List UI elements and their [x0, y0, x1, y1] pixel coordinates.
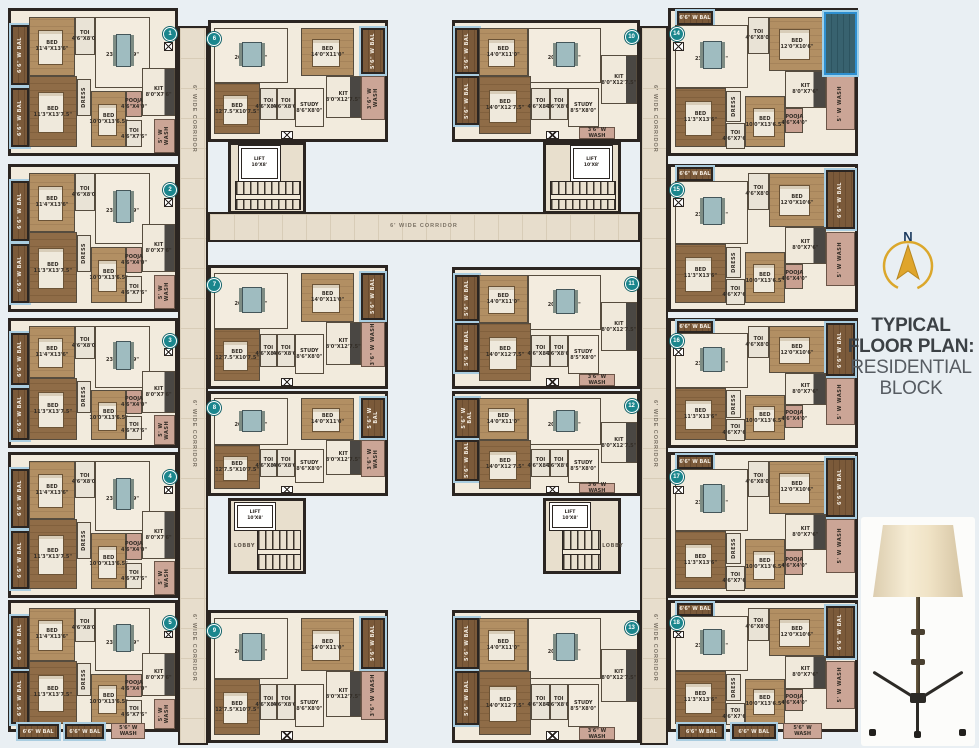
room-bed: BED 10'0"X13'6.5" — [745, 679, 785, 724]
compass-needle — [897, 245, 919, 279]
room-6-6-w-bal: 6'6" W BAL — [11, 469, 29, 528]
corridor-label: 6' WIDE CORRIDOR — [390, 224, 458, 230]
room-bed: BED 14'0"X12'7.5" — [479, 323, 532, 381]
room-label: 5' W WASH — [837, 86, 843, 121]
room-label: KIT 8'0"X12'7.5" — [326, 451, 361, 463]
room-livdin: LIVDIN 20'5"X10'9" — [214, 28, 287, 84]
room-5-w-wash: 5' W WASH — [826, 76, 855, 130]
room-kit: KIT 8'0"X7'6" — [785, 71, 825, 108]
room-label: LIVDIN 20'5"X10'9" — [235, 416, 268, 428]
apartment-unit: 6'6" W BALLIVDIN 23'3"X10'9"TOI 4'6"X8'0… — [668, 600, 858, 732]
room-5-6-w-bal: 5'6" W BAL — [455, 76, 479, 125]
room-3-6-w-wash: 3'6" W WASH — [361, 322, 385, 367]
room-bed: BED 11'3"X13'7.5" — [29, 519, 77, 589]
room-bed: BED 10'0"X13'6.5" — [91, 533, 125, 589]
room-pooja: POOJA 4'6"X4'0" — [126, 390, 142, 414]
room-label: BED 11'3"X13'7.5" — [34, 403, 72, 415]
room-label: 6'6" W BAL — [17, 396, 23, 432]
room-label: STUDY 8'6"X8'0" — [296, 700, 322, 712]
room-5-6-w-bal: 5'6" W BAL — [361, 398, 385, 438]
stair-core: LIFT 10'X8'LOBBY — [228, 498, 306, 574]
room-toi: TOI 4'6"X7'6" — [126, 700, 142, 724]
room-toi: TOI 4'6"X7'6" — [726, 703, 744, 726]
room-3-6-w-wash: 3'6" W WASH — [361, 440, 385, 478]
room-6-6-w-bal: 6'6" W BAL — [11, 333, 29, 385]
room-bed: BED 12'7.5"X10'7.5" — [214, 679, 259, 735]
apartment-unit: 6'6" W BALLIVDIN 23'3"X10'9"TOI 4'6"X8'0… — [668, 8, 858, 156]
room-label: LIVDIN 20'5"X10'9" — [548, 416, 581, 428]
room-kit: KIT 8'0"X7'6" — [785, 373, 825, 405]
room-toi: TOI 4'6"X8'0" — [277, 88, 294, 120]
apartment-unit: 6'6" W BAL6'6" W BALBED 11'4"X13'6"TOI 4… — [8, 318, 178, 448]
room-6-6-w-bal: 6'6" W BAL — [18, 724, 59, 739]
room-label: 5'6" W BAL — [464, 330, 470, 366]
room-5-6-w-bal: 5'6" W BAL — [455, 28, 479, 74]
room-toi: TOI 4'6"X8'0" — [748, 173, 768, 210]
room-label: KIT 8'0"X7'6" — [792, 239, 818, 251]
door-mark — [546, 731, 559, 740]
room-label: POOJA 4'6"X4'0" — [781, 270, 807, 282]
unit-number-badge: 15 — [670, 183, 684, 197]
unit-number-badge: 16 — [670, 334, 684, 348]
room-label: 6'6" W BAL — [837, 469, 843, 505]
room-label: KIT 8'0"X7'6" — [146, 529, 172, 541]
plan-title-sub: RESIDENTIAL BLOCK — [845, 358, 977, 400]
room-kit: KIT 8'0"X12'7.5" — [601, 649, 637, 702]
room-label: KIT 8'0"X7'6" — [792, 83, 818, 95]
room-bed: BED 10'0"X13'6.5" — [745, 252, 785, 303]
room-label: BED 10'0"X13'6.5" — [89, 269, 127, 281]
room-label: KIT 8'0"X12'7.5" — [601, 321, 636, 333]
room-label: BED 10'0"X13'6.5" — [89, 409, 127, 421]
room-kit: KIT 8'0"X7'6" — [142, 653, 175, 696]
room-bed: BED 12'0"X10'6" — [769, 326, 826, 373]
room-label: 5' W WASH — [837, 384, 843, 419]
room-livdin: LIVDIN 23'3"X10'9" — [675, 181, 749, 243]
door-mark — [164, 42, 174, 51]
room-pooja: POOJA 4'6"X4'0" — [785, 264, 803, 290]
room-study: STUDY 8'5"X8'0" — [568, 88, 599, 127]
room-label: 6'6" W BAL — [679, 171, 710, 177]
room-toi: TOI 4'6"X8'0" — [531, 684, 549, 720]
room-label: BED 11'3"X13'6" — [684, 267, 717, 279]
room-label: BED 14'0"X11'0" — [311, 639, 344, 651]
room-label: DRESS — [81, 243, 87, 264]
room-label: LIVDIN 23'3"X10'9" — [106, 202, 139, 214]
room-label: TOI 4'6"X7'6" — [121, 706, 147, 718]
room-label: 5'6" W BAL — [370, 33, 376, 69]
room-label: 3'6" W WASH — [580, 374, 614, 386]
room-label: KIT 8'0"X12'7.5" — [601, 669, 636, 681]
room-6-6-w-bal: 6'6" W BAL — [11, 88, 29, 148]
room-bed: BED 11'4"X13'6" — [29, 173, 75, 233]
room-toi: TOI 4'6"X8'0" — [277, 449, 294, 477]
room-6-6-w-bal: 6'6" W BAL — [826, 170, 855, 230]
lamp-tripod-leg — [916, 671, 963, 702]
lift: LIFT 10'X8' — [237, 505, 274, 528]
room-6-6-w-bal: 6'6" W BAL — [11, 616, 29, 669]
room-label: LIVDIN 20'5"X10'9" — [548, 49, 581, 61]
room-bed: BED 10'0"X13'6.5" — [745, 539, 785, 589]
room-label: BED 14'0"X12'7.5" — [486, 346, 524, 358]
room-bed: BED 14'0"X11'0" — [479, 618, 528, 671]
room-label: 5'6" W BAL — [464, 83, 470, 119]
unit-number-badge: 12 — [625, 399, 639, 413]
corridor: 6' WIDE CORRIDOR6' WIDE CORRIDOR6' WIDE … — [178, 26, 208, 745]
corridor: 6' WIDE CORRIDOR — [208, 212, 640, 242]
door-mark — [281, 486, 293, 493]
room-bed: BED 11'3"X13'6" — [675, 671, 727, 724]
room-5-6-w-bal: 5'6" W BAL — [361, 618, 385, 669]
apartment-unit: 6'6" W BALLIVDIN 23'3"X10'9"TOI 4'6"X8'0… — [668, 318, 858, 448]
room-bed: BED 11'3"X13'6" — [675, 531, 727, 590]
room-5-6-w-bal: 5'6" W BAL — [455, 398, 479, 438]
apartment-unit: 5'6" W BAL5'6" W BALBED 14'0"X11'0"LIVDI… — [452, 391, 640, 496]
corridor-label: 6' WIDE CORRIDOR — [190, 400, 196, 468]
room-label: 6'6" W BAL — [679, 459, 710, 465]
room-label: DRESS — [731, 394, 737, 415]
apartment-unit: 6'6" W BAL6'6" W BALBED 11'4"X13'6"TOI 4… — [8, 164, 178, 312]
unit-number-badge: 9 — [207, 624, 221, 638]
room-bed: BED 12'7.5"X10'7.5" — [214, 83, 259, 134]
room-label: BED 11'3"X13'7.5" — [34, 106, 72, 118]
door-mark — [546, 378, 559, 386]
north-compass-icon: N — [878, 228, 938, 294]
room-label: BED 11'4"X13'6" — [35, 196, 68, 208]
room-label: 5'6" W BAL — [464, 680, 470, 716]
room-toi: TOI 4'6"X8'0" — [260, 88, 277, 120]
door-mark — [673, 631, 684, 639]
room-label: 5' W WASH — [158, 120, 170, 152]
room-toi: TOI 4'6"X8'0" — [277, 334, 294, 367]
room-label: TOI 4'6"X7'6" — [121, 128, 147, 140]
room-label: BED 10'0"X13'6.5" — [89, 113, 127, 125]
room-livdin: LIVDIN 23'3"X10'9" — [675, 333, 749, 388]
room-label: LIVDIN 20'5"X10'9" — [235, 49, 268, 61]
room-5-6-w-bal: 5'6" W BAL — [361, 28, 385, 74]
room-6-6-w-bal: 6'6" W BAL — [677, 321, 714, 333]
room-toi: TOI 4'6"X8'0" — [550, 335, 568, 367]
room-bed: BED 12'7.5"X10'7.5" — [214, 445, 259, 489]
unit-number-badge: 6 — [207, 32, 221, 46]
apartment-unit: LIVDIN 20'5"X10'9"BED 14'0"X11'0"5'6" W … — [208, 610, 388, 743]
room-5-6-w-bal: 5'6" W BAL — [361, 273, 385, 320]
room-toi: TOI 4'6"X8'0" — [550, 88, 568, 120]
room-bed: BED 10'0"X13'6.5" — [91, 390, 125, 440]
room-label: BED 14'0"X12'7.5" — [486, 697, 524, 709]
room-label: TOI 4'6"X8'0" — [745, 29, 771, 41]
room-livdin: LIVDIN 23'3"X10'9" — [675, 25, 749, 87]
room-toi: TOI 4'6"X8'0" — [75, 608, 95, 642]
room-label: BED 11'4"X13'6" — [35, 346, 68, 358]
room-kit: KIT 8'0"X12'7.5" — [326, 671, 361, 717]
room-label: KIT 8'0"X12'7.5" — [326, 688, 361, 700]
plan-title: TYPICAL FLOOR PLAN: RESIDENTIAL BLOCK — [845, 316, 977, 400]
lobby-label: LOBBY — [602, 544, 623, 549]
room-label: 5'6" W BAL — [370, 625, 376, 661]
room-label: BED 12'7.5"X10'7.5" — [215, 701, 259, 713]
unit-number-badge: 3 — [163, 334, 177, 348]
room-label: 5'6" W BAL — [367, 400, 379, 436]
room-label: 6'6" W BAL — [17, 480, 23, 516]
apartment-unit: 6'6" W BALLIVDIN 23'3"X10'9"TOI 4'6"X8'0… — [668, 164, 858, 312]
room-label: KIT 8'0"X7'6" — [146, 669, 172, 681]
room-kit: KIT 8'0"X7'6" — [142, 68, 175, 116]
unit-number-badge: 17 — [670, 470, 684, 484]
room-dress: DRESS — [77, 663, 92, 696]
room-study: STUDY 8'6"X8'0" — [295, 334, 325, 374]
room-label: STUDY 8'5"X8'0" — [570, 349, 596, 361]
room-label: BED 12'7.5"X10'7.5" — [215, 349, 259, 361]
room-label: BED 14'0"X11'0" — [487, 46, 520, 58]
room-toi: TOI 4'6"X8'0" — [260, 684, 277, 720]
room-label: BED 11'3"X13'7.5" — [34, 548, 72, 560]
room-label: STUDY 8'6"X8'0" — [296, 348, 322, 360]
room-bed: BED 12'0"X10'6" — [769, 608, 826, 656]
room-5-6-w-bal: 5'6" W BAL — [455, 440, 479, 482]
room-label: LIVDIN 23'3"X10'9" — [695, 50, 728, 62]
room-label: LIVDIN 23'3"X10'9" — [695, 206, 728, 218]
room-label: DRESS — [81, 87, 87, 108]
room-bed: BED 14'0"X11'0" — [479, 398, 528, 440]
room-kit: KIT 8'0"X7'6" — [142, 224, 175, 272]
stairs — [257, 530, 301, 570]
stair-core: LIFT 10'X8'LOBBY — [543, 498, 621, 574]
room-label: STUDY 8'5"X8'0" — [570, 460, 596, 472]
stairs — [235, 181, 302, 211]
apartment-unit: LIVDIN 20'5"X10'9"BED 14'0"X11'0"5'6" W … — [208, 20, 388, 142]
room-6-6-w-bal: 6'6" W BAL — [677, 167, 714, 181]
room-5-6-w-bal: 5'6" W BAL — [455, 275, 479, 321]
room-label: TOI 4'6"X7'6" — [121, 422, 147, 434]
room-label: KIT 8'0"X12'7.5" — [601, 437, 636, 449]
room-dress: DRESS — [77, 381, 92, 413]
room-5-w-wash: 5' W WASH — [154, 275, 175, 309]
unit-number-badge: 7 — [207, 278, 221, 292]
room-label: 3'6" W WASH — [580, 482, 614, 494]
room-label: POOJA 4'6"X4'0" — [781, 410, 807, 422]
room-5-6-w-wash: 5'6" W WASH — [111, 723, 145, 739]
room-toi: TOI 4'6"X8'0" — [748, 17, 768, 54]
room-label: 6'6" W BAL — [17, 256, 23, 292]
room-5-w-wash: 5' W WASH — [154, 119, 175, 153]
room-6-6-w-bal: 6'6" W BAL — [65, 724, 104, 739]
room-6-6-w-bal: 6'6" W BAL — [11, 25, 29, 85]
room-kit: KIT 8'0"X12'7.5" — [601, 55, 637, 104]
room-label: STUDY 8'6"X8'0" — [296, 460, 322, 472]
room-bed: BED 11'4"X13'6" — [29, 608, 75, 661]
room-5-6-w-bal: 5'6" W BAL — [455, 618, 479, 669]
apartment-unit: LIVDIN 20'5"X10'9"BED 14'0"X11'0"5'6" W … — [208, 391, 388, 496]
room-bed: BED 11'3"X13'7.5" — [29, 378, 77, 440]
lamp-pole — [916, 597, 920, 693]
room-toi: TOI 4'6"X8'0" — [531, 88, 549, 120]
room-label: BED 11'3"X13'6" — [684, 111, 717, 123]
lamp-tripod-leg — [872, 671, 919, 702]
room-6-6-w-bal: 6'6" W BAL — [11, 388, 29, 440]
door-mark — [546, 131, 559, 139]
room-pooja: POOJA 4'6"X4'0" — [785, 550, 803, 575]
door-mark — [673, 198, 684, 207]
room-toi: TOI 4'6"X7'6" — [126, 120, 142, 147]
room-label: 3'6" W WASH — [580, 127, 614, 139]
room-bed: BED 12'7.5"X10'7.5" — [214, 329, 259, 381]
room-label: BED 11'3"X13'7.5" — [34, 262, 72, 274]
room-label: BED 11'3"X13'6" — [684, 554, 717, 566]
room-6-6-w-bal: 6'6" W BAL — [11, 671, 29, 724]
room-label: LIVDIN 23'3"X10'9" — [695, 637, 728, 649]
room-label: TOI 4'6"X8'0" — [745, 336, 771, 348]
room-label: TOI 4'6"X7'6" — [121, 284, 147, 296]
lift: LIFT 10'X8' — [241, 148, 278, 179]
room-label: POOJA 4'6"X4'0" — [781, 114, 807, 126]
room-bed: BED 14'0"X11'0" — [479, 28, 528, 77]
room-label: STUDY 8'5"X8'0" — [570, 102, 596, 114]
compass-north-label: N — [903, 229, 912, 244]
unit-number-badge: 8 — [207, 401, 221, 415]
plan-title-main: TYPICAL FLOOR PLAN: — [845, 316, 977, 358]
room-bed: BED 14'0"X11'0" — [301, 398, 353, 440]
room-dress: DRESS — [726, 674, 741, 702]
room-label: LIVDIN 20'5"X10'9" — [235, 295, 268, 307]
room-label: 5'6" W BAL — [461, 400, 473, 436]
room-study: STUDY 8'5"X8'0" — [568, 449, 599, 483]
room-toi: TOI 4'6"X7'6" — [726, 419, 744, 441]
room-label: LIVDIN 20'5"X10'9" — [235, 643, 268, 655]
room-label: BED 10'0"X13'6.5" — [746, 116, 784, 128]
room-pooja: POOJA 4'6"X4'0" — [126, 247, 142, 274]
room-label: LIVDIN 23'3"X10'9" — [695, 355, 728, 367]
stair-core: LIFT 10'X8' — [228, 142, 306, 214]
room-label: DRESS — [731, 96, 737, 117]
room-label: 3'6" W WASH — [367, 77, 379, 119]
room-bed: BED 14'0"X12'7.5" — [479, 671, 532, 735]
room-label: 6'6" W BAL — [23, 729, 54, 735]
room-toi: TOI 4'6"X7'6" — [126, 563, 142, 590]
unit-number-badge: 14 — [670, 27, 684, 41]
room-5-w-wash: 5' W WASH — [826, 661, 855, 709]
room-label: 5'6" W BAL — [464, 33, 470, 69]
room-toi: TOI 4'6"X8'0" — [550, 449, 568, 477]
room-label: 6'6" W BAL — [738, 729, 769, 735]
room-bed: BED 14'0"X11'0" — [301, 28, 353, 77]
room-label: 3'6" W WASH — [370, 674, 376, 717]
room-livdin: LIVDIN 20'5"X10'9" — [528, 618, 601, 679]
room-label: 5'6" W BAL — [464, 625, 470, 661]
room-6-6-w-bal: 6'6" W BAL — [11, 181, 29, 241]
stair-core: LIFT 10'X8' — [543, 142, 621, 214]
room-bed: BED 11'3"X13'7.5" — [29, 661, 77, 724]
door-mark — [164, 198, 174, 207]
room-6-6-w-bal: 6'6" W BAL — [826, 606, 855, 659]
room-kit: KIT 8'0"X7'6" — [142, 511, 175, 559]
room-study: STUDY 8'5"X8'0" — [568, 684, 599, 727]
door-mark — [546, 486, 559, 493]
apartment-unit: 5'6" W BAL5'6" W BALBED 14'0"X11'0"LIVDI… — [452, 267, 640, 389]
room-toi: TOI 4'6"X8'0" — [75, 173, 95, 211]
room-label: BED 10'0"X13'6.5" — [746, 558, 784, 570]
room-label: 5'6" W WASH — [784, 725, 821, 737]
room-5-6-w-bal: 5'6" W BAL — [455, 671, 479, 724]
room-bed: BED 11'3"X13'6" — [675, 88, 727, 148]
room-toi: TOI 4'6"X7'6" — [126, 416, 142, 440]
room-label: KIT 8'0"X7'6" — [792, 666, 818, 678]
room-label: 5' W WASH — [158, 276, 170, 308]
room-label: TOI 4'6"X8'0" — [745, 473, 771, 485]
room-label: BED 11'3"X13'6" — [684, 408, 717, 420]
room-bed: BED 14'0"X12'7.5" — [479, 76, 532, 134]
lamp-knob — [911, 659, 925, 665]
room-study: STUDY 8'6"X8'0" — [295, 88, 325, 127]
unit-number-badge: 2 — [163, 183, 177, 197]
room-kit: KIT 8'0"X12'7.5" — [326, 76, 361, 118]
stairs — [550, 181, 617, 211]
room-label: 6'6" W BAL — [17, 341, 23, 377]
room-label: 5' W WASH — [158, 416, 170, 444]
room-kit: KIT 8'0"X7'6" — [785, 514, 825, 550]
room-label: LIVDIN 23'3"X10'9" — [695, 494, 728, 506]
room-study: STUDY 8'5"X8'0" — [568, 335, 599, 374]
room-label: 6'6" W BAL — [17, 542, 23, 578]
room-label: BED 12'0"X10'6" — [781, 344, 814, 356]
room-label: 6'6" W BAL — [837, 332, 843, 368]
room-toi: TOI 4'6"X8'0" — [75, 461, 95, 499]
apartment-unit: 5'6" W BAL5'6" W BALBED 14'0"X11'0"LIVDI… — [452, 610, 640, 743]
room-label: 3'6" W WASH — [370, 323, 376, 366]
room-toi: TOI 4'6"X7'6" — [726, 123, 744, 149]
corridor-label: 6' WIDE CORRIDOR — [190, 614, 196, 682]
corridor-label: 6' WIDE CORRIDOR — [651, 85, 657, 153]
room-label: 3'6" W WASH — [580, 728, 614, 740]
lamp-foot — [914, 731, 921, 738]
room-label: BED 10'0"X13'6.5" — [746, 695, 784, 707]
room-bed: BED 10'0"X13'6.5" — [745, 395, 785, 440]
room-label: 5' W WASH — [837, 667, 843, 702]
room-dress: DRESS — [77, 235, 92, 272]
room-study: STUDY 8'6"X8'0" — [295, 449, 325, 483]
room-3-6-w-wash: 3'6" W WASH — [579, 727, 615, 740]
room-3-6-w-wash: 3'6" W WASH — [579, 483, 615, 493]
room-label: LIVDIN 23'3"X10'9" — [106, 490, 139, 502]
room-livdin: LIVDIN 23'3"X10'9" — [675, 469, 749, 531]
highlighted-balcony — [824, 12, 857, 74]
room-toi: TOI 4'6"X8'0" — [260, 334, 277, 367]
room-livdin: LIVDIN 20'5"X10'9" — [528, 275, 601, 331]
room-label: BED 10'0"X13'6.5" — [746, 272, 784, 284]
room-bed: BED 10'0"X13'6.5" — [745, 96, 785, 147]
room-6-6-w-bal: 6'6" W BAL — [732, 724, 776, 739]
door-mark — [673, 348, 684, 355]
room-toi: TOI 4'6"X7'6" — [726, 566, 744, 591]
room-label: LIVDIN 20'5"X10'9" — [548, 643, 581, 655]
room-toi: TOI 4'6"X8'0" — [550, 684, 568, 720]
room-label: BED 12'0"X10'6" — [781, 626, 814, 638]
room-livdin: LIVDIN 20'5"X10'9" — [528, 398, 601, 446]
room-label: BED 12'7.5"X10'7.5" — [215, 461, 259, 473]
room-6-6-w-bal: 6'6" W BAL — [677, 455, 714, 469]
unit-number-badge: 13 — [625, 621, 639, 635]
room-label: 6'6" W BAL — [837, 614, 843, 650]
room-bed: BED 14'0"X11'0" — [479, 275, 528, 324]
room-5-w-wash: 5' W WASH — [826, 232, 855, 286]
door-mark — [281, 731, 293, 740]
room-dress: DRESS — [726, 91, 741, 122]
door-mark — [673, 42, 684, 51]
room-kit: KIT 8'0"X7'6" — [142, 371, 175, 413]
unit-number-badge: 10 — [625, 30, 639, 44]
room-label: DRESS — [81, 386, 87, 407]
room-bed: BED 10'0"X13'6.5" — [91, 247, 125, 304]
